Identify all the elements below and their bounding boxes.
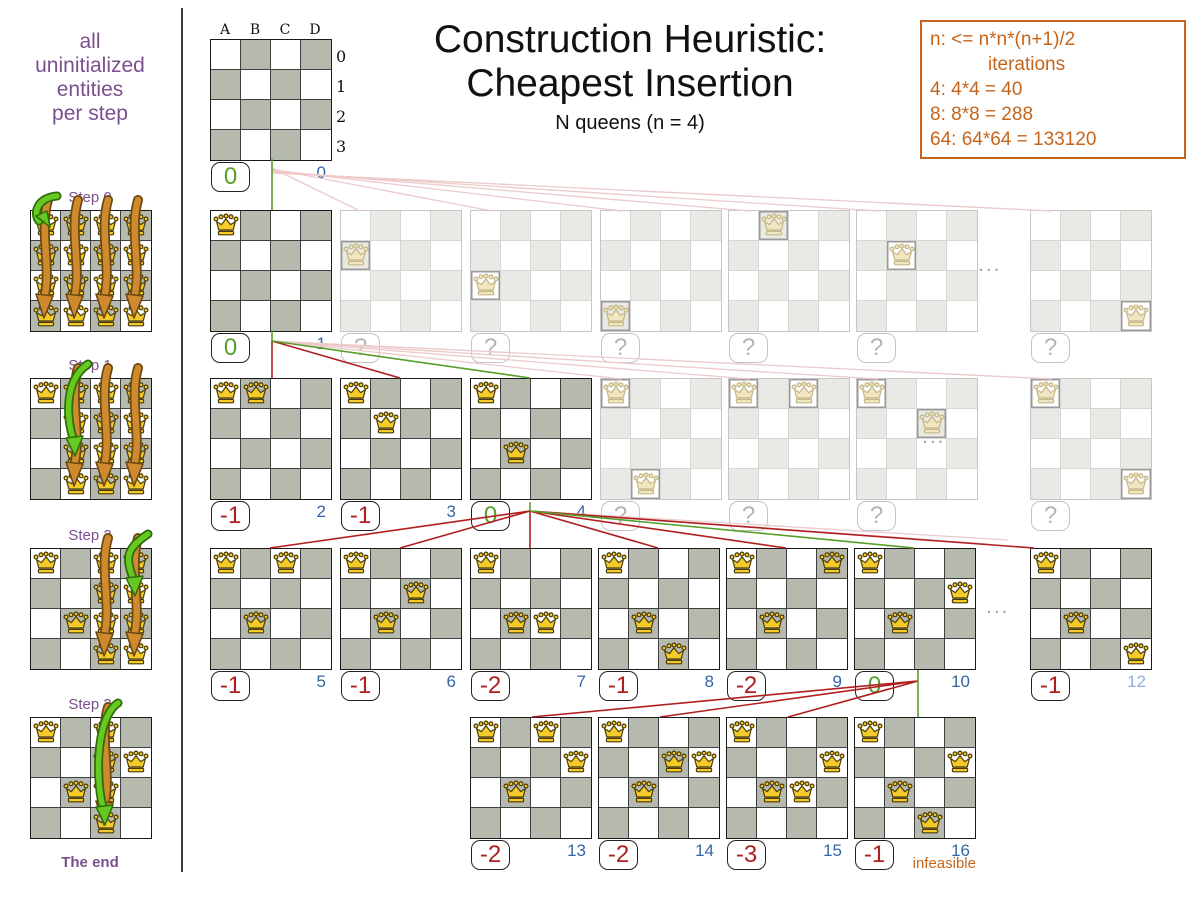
- queen-icon: [123, 611, 149, 636]
- board-cell: [857, 439, 887, 469]
- board-cell: [945, 549, 975, 579]
- board-cell: [631, 241, 661, 271]
- queen-icon: [889, 243, 915, 268]
- board-cell: [211, 549, 241, 579]
- board-cell: [915, 609, 945, 639]
- board-cell: [341, 439, 371, 469]
- chessboard: [854, 548, 976, 670]
- board-cell: [659, 639, 689, 669]
- score-badge: ?: [341, 333, 380, 363]
- board-cell: [301, 409, 331, 439]
- board-cell: [1121, 211, 1151, 241]
- board-cell: [341, 469, 371, 499]
- board-cell: [91, 211, 121, 241]
- board-cell: [91, 409, 121, 439]
- board-cell: [501, 579, 531, 609]
- board-cell: [211, 609, 241, 639]
- board-row-label: 3: [336, 137, 346, 156]
- board-cell: [915, 778, 945, 808]
- board-cell: [689, 808, 719, 838]
- score-badge: ?: [857, 333, 896, 363]
- board-cell: [659, 808, 689, 838]
- board-cell: [1121, 271, 1151, 301]
- board-cell: [211, 301, 241, 331]
- board-cell: [887, 469, 917, 499]
- board-cell: [501, 379, 531, 409]
- board-cell: [727, 639, 757, 669]
- board-cell: [471, 778, 501, 808]
- queen-icon: [1063, 611, 1089, 636]
- board-cell: [601, 211, 631, 241]
- board-cell: [1121, 469, 1151, 499]
- board-cell: [855, 609, 885, 639]
- board-cell: [947, 439, 977, 469]
- board-cell: [431, 241, 461, 271]
- queen-icon: [603, 381, 629, 406]
- board-cell: [661, 241, 691, 271]
- board-cell: [121, 579, 151, 609]
- board-cell: [661, 439, 691, 469]
- board-cell: [947, 409, 977, 439]
- board-cell: [271, 130, 301, 160]
- board-cell: [1031, 409, 1061, 439]
- queen-icon: [123, 441, 149, 466]
- page-title: Construction Heuristic: Cheapest Inserti…: [390, 18, 870, 106]
- board-column-label: B: [240, 22, 270, 38]
- board-cell: [661, 211, 691, 241]
- board-cell: [629, 549, 659, 579]
- board-cell: [1061, 409, 1091, 439]
- board-cell: [727, 579, 757, 609]
- board-cell: [885, 549, 915, 579]
- board-cell: [271, 241, 301, 271]
- board-cell: [857, 469, 887, 499]
- board-cell: [471, 211, 501, 241]
- queen-icon: [213, 381, 239, 406]
- board-cell: [471, 469, 501, 499]
- board-cell: [531, 241, 561, 271]
- board-cell: [1061, 439, 1091, 469]
- board-cell: [915, 718, 945, 748]
- board-cell: [371, 211, 401, 241]
- iteration-label: 0: [210, 163, 326, 183]
- board-cell: [729, 469, 759, 499]
- queen-icon: [343, 243, 369, 268]
- board-cell: [787, 579, 817, 609]
- board-cell: [401, 579, 431, 609]
- note-line: 8: 8*8 = 288: [930, 102, 1176, 127]
- board-cell: [121, 439, 151, 469]
- board-cell: [61, 211, 91, 241]
- board-cell: [431, 609, 461, 639]
- board-cell: [599, 718, 629, 748]
- board-cell: [915, 748, 945, 778]
- board-cell: [599, 549, 629, 579]
- board-cell: [1121, 409, 1151, 439]
- board-row-label: 2: [336, 107, 346, 126]
- board-cell: [91, 549, 121, 579]
- board-column-label: A: [210, 22, 240, 38]
- queen-icon: [563, 750, 589, 775]
- board-cell: [31, 301, 61, 331]
- board-cell: [945, 808, 975, 838]
- board-cell: [371, 579, 401, 609]
- queen-icon: [63, 273, 89, 298]
- board-cell: [629, 639, 659, 669]
- board-cell: [1031, 469, 1061, 499]
- board-cell: [947, 469, 977, 499]
- board-cell: [789, 301, 819, 331]
- board-cell: [855, 549, 885, 579]
- board-cell: [729, 301, 759, 331]
- board-cell: [341, 211, 371, 241]
- board-cell: [271, 579, 301, 609]
- board-cell: [1031, 609, 1061, 639]
- chessboard: [210, 548, 332, 670]
- board-cell: [887, 379, 917, 409]
- board-cell: [341, 301, 371, 331]
- board-cell: [917, 301, 947, 331]
- board-cell: [855, 639, 885, 669]
- queen-icon: [887, 611, 913, 636]
- sidebar-caption: all uninitialized entities per step: [2, 30, 178, 126]
- board-cell: [401, 609, 431, 639]
- divider: [181, 8, 183, 872]
- board-cell: [855, 808, 885, 838]
- board-cell: [727, 609, 757, 639]
- board-cell: [471, 549, 501, 579]
- board-cell: [915, 549, 945, 579]
- score-badge: ?: [601, 501, 640, 531]
- queen-icon: [373, 611, 399, 636]
- iteration-label: 5: [210, 672, 326, 692]
- board-cell: [31, 579, 61, 609]
- board-cell: [341, 271, 371, 301]
- board-cell: [757, 778, 787, 808]
- board-cell: [691, 379, 721, 409]
- board-cell: [91, 808, 121, 838]
- queen-icon: [343, 551, 369, 576]
- board-cell: [471, 609, 501, 639]
- queen-icon: [503, 441, 529, 466]
- board-cell: [561, 211, 591, 241]
- board-cell: [1031, 549, 1061, 579]
- board-cell: [301, 609, 331, 639]
- board-cell: [211, 130, 241, 160]
- board-cell: [31, 409, 61, 439]
- board-cell: [789, 241, 819, 271]
- board-cell: [689, 718, 719, 748]
- board-cell: [301, 579, 331, 609]
- notes-box: n: <= n*n*(n+1)/2iterations4: 4*4 = 408:…: [920, 20, 1186, 159]
- board-cell: [917, 241, 947, 271]
- board-cell: [819, 241, 849, 271]
- board-cell: [401, 469, 431, 499]
- infeasible-label: infeasible: [896, 855, 976, 872]
- board-cell: [601, 439, 631, 469]
- board-cell: [241, 211, 271, 241]
- queen-icon: [601, 551, 627, 576]
- board-cell: [1061, 301, 1091, 331]
- board-cell: [31, 609, 61, 639]
- chessboard: [30, 548, 152, 670]
- board-cell: [241, 70, 271, 100]
- board-cell: [629, 609, 659, 639]
- board-cell: [1121, 549, 1151, 579]
- chessboard: [210, 39, 332, 161]
- board-cell: [531, 639, 561, 669]
- board-cell: [691, 211, 721, 241]
- board-cell: [631, 379, 661, 409]
- board-cell: [471, 718, 501, 748]
- board-cell: [431, 639, 461, 669]
- queen-icon: [473, 720, 499, 745]
- board-cell: [61, 718, 91, 748]
- board-row-label: 0: [336, 47, 346, 66]
- board-cell: [471, 379, 501, 409]
- board-cell: [885, 808, 915, 838]
- board-cell: [341, 609, 371, 639]
- board-cell: [561, 409, 591, 439]
- board-cell: [917, 469, 947, 499]
- board-cell: [531, 778, 561, 808]
- board-cell: [371, 639, 401, 669]
- board-cell: [561, 271, 591, 301]
- board-cell: [501, 639, 531, 669]
- board-cell: [401, 409, 431, 439]
- board-cell: [689, 748, 719, 778]
- board-cell: [241, 301, 271, 331]
- board-cell: [857, 211, 887, 241]
- chessboard: [210, 210, 332, 332]
- board-cell: [431, 579, 461, 609]
- chessboard: [470, 210, 592, 332]
- note-line: 4: 4*4 = 40: [930, 77, 1176, 102]
- board-cell: [599, 579, 629, 609]
- queen-icon: [1033, 381, 1059, 406]
- board-cell: [211, 469, 241, 499]
- board-cell: [1121, 439, 1151, 469]
- queen-icon: [473, 273, 499, 298]
- board-cell: [301, 130, 331, 160]
- board-cell: [819, 409, 849, 439]
- board-cell: [431, 271, 461, 301]
- chessboard: [340, 378, 462, 500]
- board-cell: [431, 301, 461, 331]
- queen-icon: [691, 750, 717, 775]
- queen-icon: [857, 720, 883, 745]
- board-cell: [91, 609, 121, 639]
- iteration-label: 9: [726, 672, 842, 692]
- board-cell: [885, 579, 915, 609]
- queen-icon: [93, 213, 119, 238]
- board-cell: [61, 469, 91, 499]
- board-cell: [91, 301, 121, 331]
- board-cell: [211, 40, 241, 70]
- board-cell: [401, 301, 431, 331]
- iteration-label: 15: [726, 841, 842, 861]
- board-cell: [471, 409, 501, 439]
- board-cell: [301, 301, 331, 331]
- step-label: Step 0: [10, 189, 170, 206]
- board-cell: [91, 469, 121, 499]
- iteration-label: 1: [210, 334, 326, 354]
- board-cell: [757, 549, 787, 579]
- board-cell: [691, 301, 721, 331]
- board-cell: [757, 639, 787, 669]
- queen-icon: [503, 780, 529, 805]
- board-cell: [471, 439, 501, 469]
- board-cell: [121, 241, 151, 271]
- queen-icon: [93, 581, 119, 606]
- board-cell: [1121, 379, 1151, 409]
- board-cell: [727, 718, 757, 748]
- board-cell: [727, 778, 757, 808]
- board-cell: [689, 778, 719, 808]
- board-cell: [471, 241, 501, 271]
- board-cell: [1031, 241, 1061, 271]
- note-line: 64: 64*64 = 133120: [930, 127, 1176, 152]
- board-cell: [661, 271, 691, 301]
- board-cell: [371, 409, 401, 439]
- board-cell: [241, 241, 271, 271]
- chessboard: [30, 210, 152, 332]
- chessboard: [470, 548, 592, 670]
- board-cell: [301, 549, 331, 579]
- queen-icon: [123, 581, 149, 606]
- board-cell: [1061, 579, 1091, 609]
- board-cell: [121, 748, 151, 778]
- tree-edge-pink: [272, 173, 1052, 211]
- board-cell: [759, 439, 789, 469]
- chessboard: [470, 378, 592, 500]
- board-cell: [471, 271, 501, 301]
- board-cell: [691, 439, 721, 469]
- board-cell: [531, 808, 561, 838]
- board-cell: [471, 301, 501, 331]
- board-cell: [1061, 549, 1091, 579]
- queen-icon: [123, 642, 149, 667]
- chessboard: [600, 378, 722, 500]
- board-cell: [501, 241, 531, 271]
- board-cell: [271, 549, 301, 579]
- board-cell: [759, 241, 789, 271]
- board-cell: [691, 271, 721, 301]
- queen-icon: [1033, 551, 1059, 576]
- board-cell: [91, 439, 121, 469]
- step-label: Step 1: [10, 357, 170, 374]
- board-cell: [61, 549, 91, 579]
- tree-edge-pink: [272, 172, 878, 211]
- chessboard: [726, 717, 848, 839]
- board-cell: [789, 469, 819, 499]
- board-cell: [917, 271, 947, 301]
- board-cell: [341, 549, 371, 579]
- board-cell: [371, 549, 401, 579]
- board-cell: [401, 271, 431, 301]
- board-cell: [531, 211, 561, 241]
- chessboard: [1030, 378, 1152, 500]
- board-cell: [629, 808, 659, 838]
- tree-edge-pink: [272, 341, 1052, 379]
- chessboard: [728, 210, 850, 332]
- queen-icon: [63, 441, 89, 466]
- chessboard: [340, 210, 462, 332]
- queen-icon: [123, 243, 149, 268]
- board-cell: [31, 241, 61, 271]
- board-cell: [241, 271, 271, 301]
- board-cell: [857, 271, 887, 301]
- board-cell: [947, 379, 977, 409]
- chessboard: [30, 717, 152, 839]
- chessboard: [340, 548, 462, 670]
- score-badge: ?: [471, 333, 510, 363]
- board-cell: [561, 549, 591, 579]
- queen-icon: [123, 472, 149, 497]
- board-cell: [371, 439, 401, 469]
- queen-icon: [761, 213, 787, 238]
- queen-icon: [1123, 642, 1149, 667]
- board-cell: [629, 778, 659, 808]
- board-cell: [819, 211, 849, 241]
- board-cell: [271, 469, 301, 499]
- title-line-2: Cheapest Insertion: [390, 62, 870, 106]
- board-cell: [1031, 379, 1061, 409]
- queen-icon: [819, 750, 845, 775]
- board-cell: [61, 271, 91, 301]
- board-cell: [471, 639, 501, 669]
- iteration-label: 12: [1030, 672, 1146, 692]
- queen-icon: [33, 551, 59, 576]
- score-badge: ?: [729, 333, 768, 363]
- board-cell: [31, 639, 61, 669]
- board-cell: [1031, 271, 1061, 301]
- board-cell: [855, 748, 885, 778]
- board-cell: [947, 271, 977, 301]
- board-cell: [501, 609, 531, 639]
- board-cell: [121, 549, 151, 579]
- queen-icon: [93, 551, 119, 576]
- board-cell: [729, 271, 759, 301]
- board-cell: [1091, 439, 1121, 469]
- queen-icon: [63, 411, 89, 436]
- board-cell: [561, 808, 591, 838]
- board-cell: [271, 211, 301, 241]
- board-cell: [1121, 609, 1151, 639]
- board-cell: [689, 549, 719, 579]
- board-cell: [501, 409, 531, 439]
- board-column-label: D: [300, 22, 330, 38]
- board-cell: [757, 718, 787, 748]
- queen-icon: [63, 213, 89, 238]
- board-cell: [31, 211, 61, 241]
- queen-icon: [93, 750, 119, 775]
- board-cell: [241, 609, 271, 639]
- board-cell: [917, 379, 947, 409]
- board-cell: [787, 718, 817, 748]
- board-cell: [689, 639, 719, 669]
- board-cell: [659, 609, 689, 639]
- board-cell: [817, 579, 847, 609]
- board-cell: [271, 271, 301, 301]
- board-cell: [471, 808, 501, 838]
- board-cell: [855, 778, 885, 808]
- board-cell: [241, 130, 271, 160]
- board-cell: [787, 639, 817, 669]
- board-cell: [787, 808, 817, 838]
- board-cell: [431, 211, 461, 241]
- board-cell: [789, 271, 819, 301]
